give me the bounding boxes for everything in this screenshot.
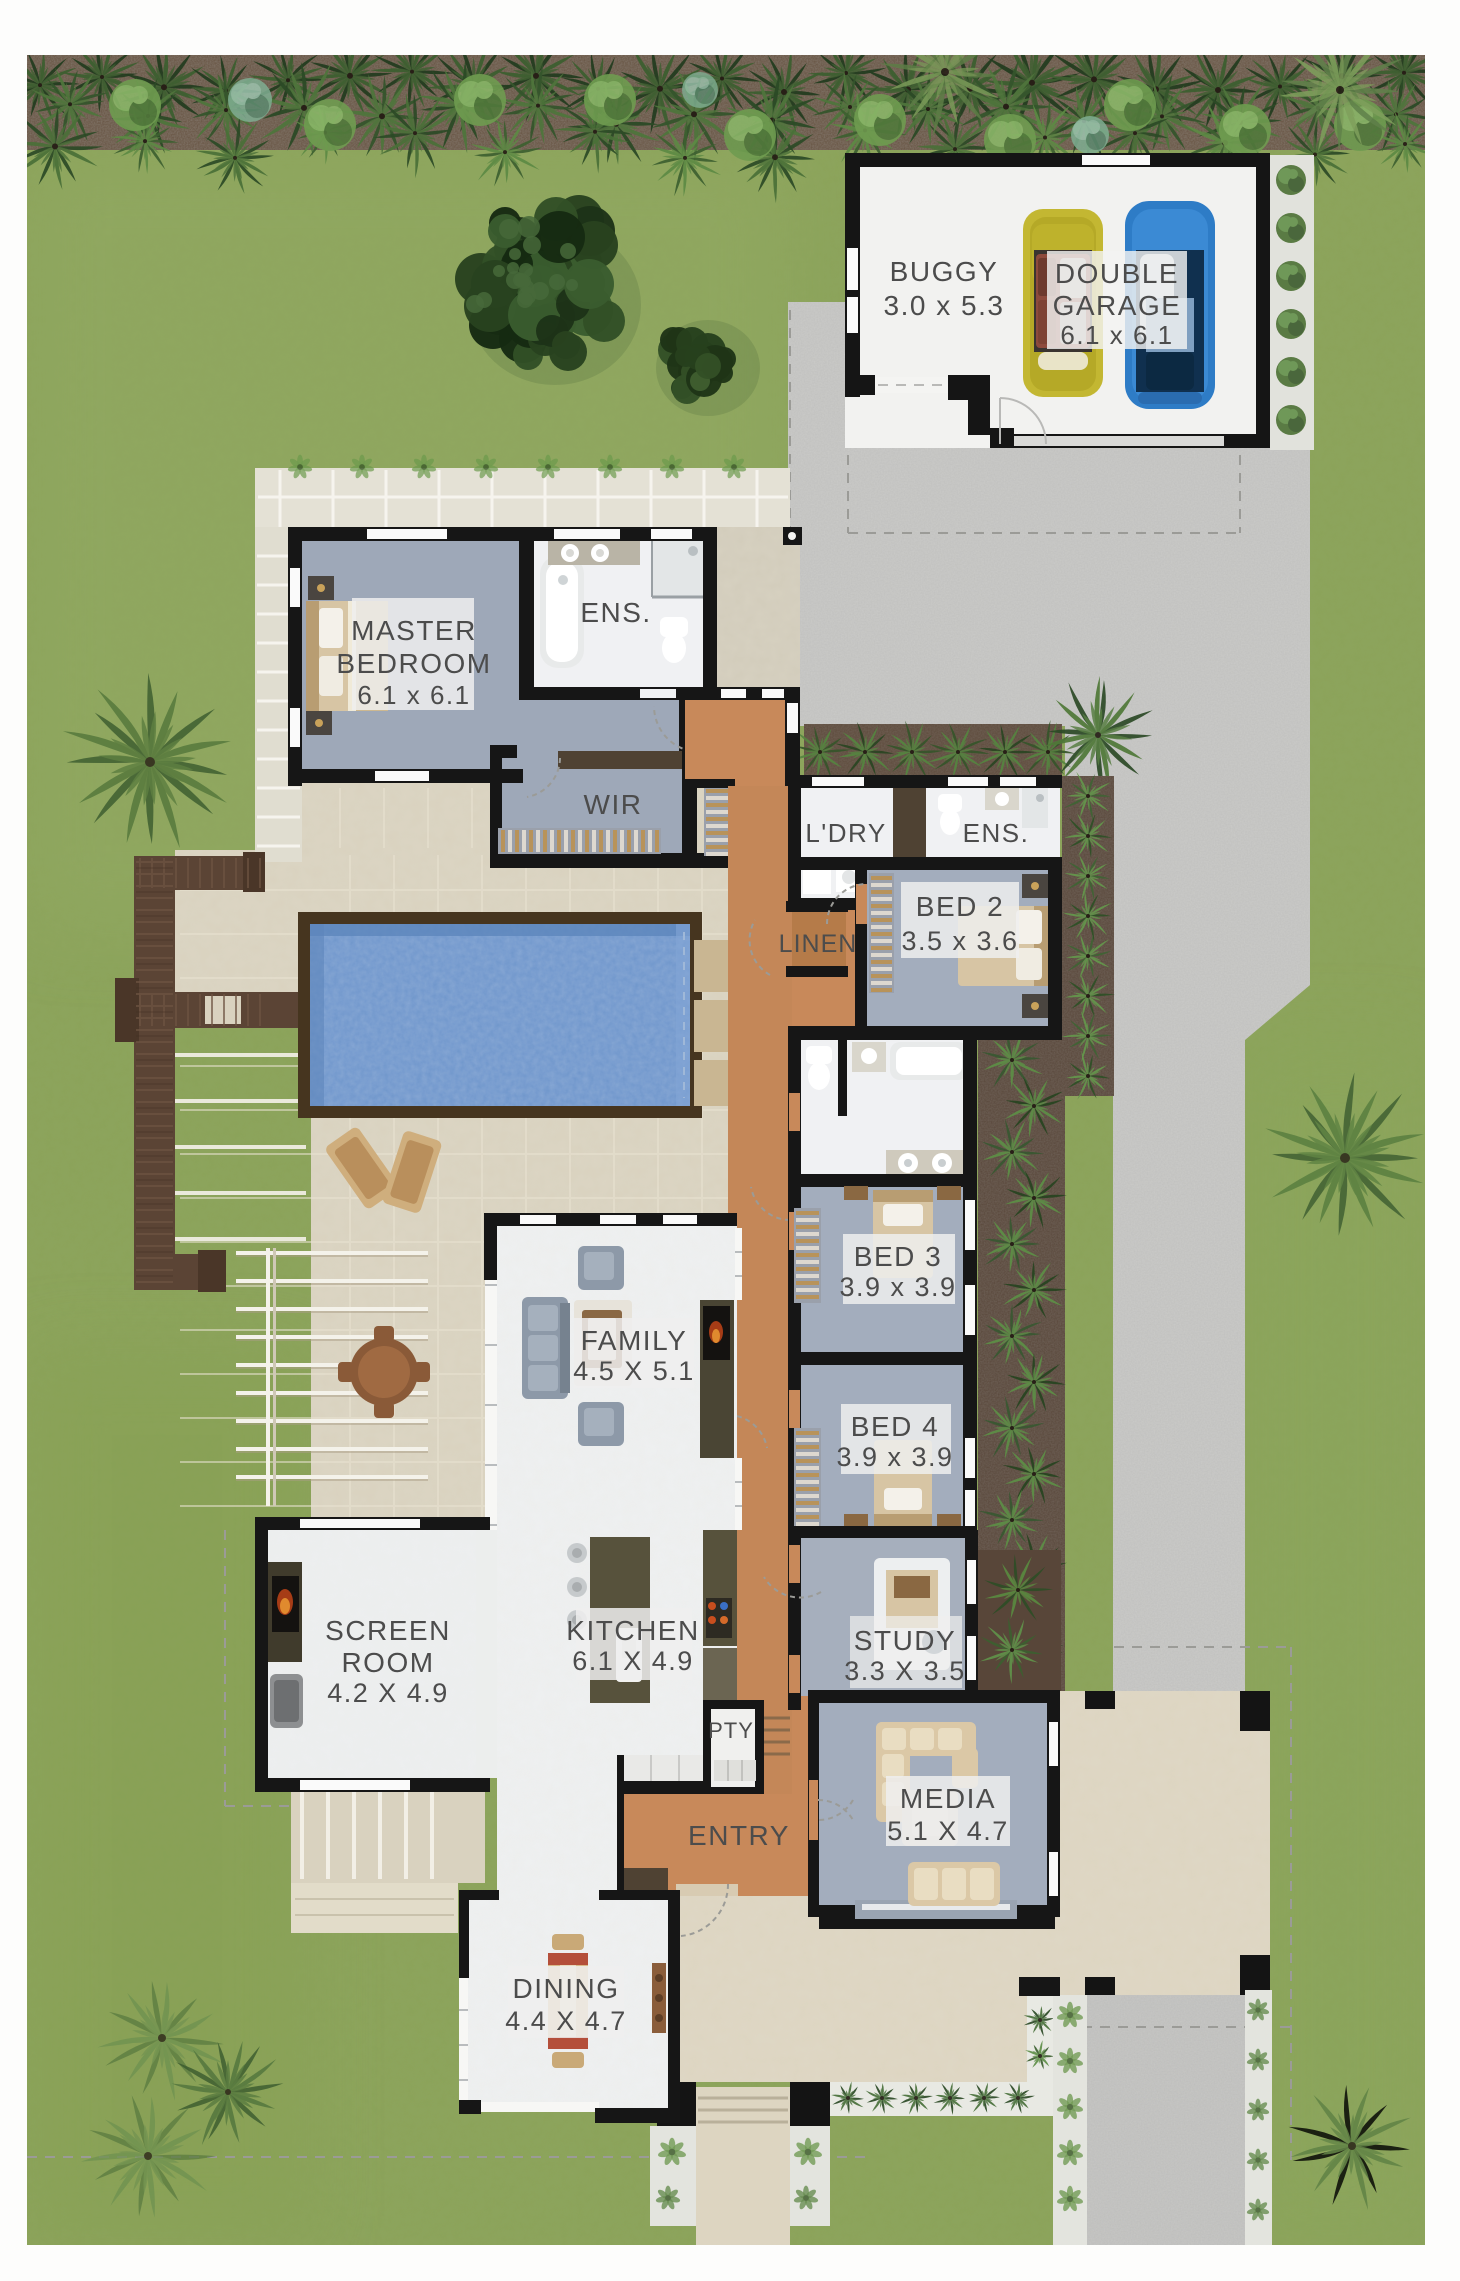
svg-text:KITCHEN: KITCHEN — [566, 1615, 699, 1646]
svg-text:L'DRY: L'DRY — [805, 818, 886, 848]
svg-text:PTY: PTY — [708, 1718, 754, 1743]
svg-text:BEDROOM: BEDROOM — [336, 648, 491, 679]
svg-text:LINEN: LINEN — [779, 930, 858, 958]
svg-text:MEDIA: MEDIA — [900, 1783, 996, 1814]
svg-text:4.2 X 4.9: 4.2 X 4.9 — [327, 1678, 449, 1708]
svg-text:4.5 X 5.1: 4.5 X 5.1 — [573, 1356, 695, 1386]
svg-text:STUDY: STUDY — [854, 1625, 956, 1656]
svg-text:DINING: DINING — [513, 1973, 620, 2004]
svg-text:3.0 x 5.3: 3.0 x 5.3 — [884, 290, 1005, 321]
svg-text:3.5 x 3.6: 3.5 x 3.6 — [901, 926, 1018, 956]
svg-text:ENS.: ENS. — [963, 818, 1030, 848]
svg-text:SCREEN: SCREEN — [325, 1615, 451, 1646]
svg-text:DOUBLE: DOUBLE — [1055, 258, 1179, 289]
svg-text:ENS.: ENS. — [580, 597, 651, 628]
svg-text:FAMILY: FAMILY — [581, 1325, 688, 1356]
svg-text:ROOM: ROOM — [341, 1647, 434, 1678]
svg-text:WIR: WIR — [584, 789, 643, 820]
svg-text:MASTER: MASTER — [351, 615, 477, 646]
svg-text:BED 4: BED 4 — [851, 1411, 939, 1442]
svg-text:BUGGY: BUGGY — [890, 256, 999, 287]
svg-text:3.9 x 3.9: 3.9 x 3.9 — [839, 1272, 956, 1302]
svg-text:ENTRY: ENTRY — [688, 1820, 790, 1851]
svg-text:6.1 x 6.1: 6.1 x 6.1 — [357, 680, 470, 710]
svg-text:BED 2: BED 2 — [916, 891, 1004, 922]
svg-text:4.4 X 4.7: 4.4 X 4.7 — [505, 2006, 627, 2036]
svg-text:3.9 x 3.9: 3.9 x 3.9 — [836, 1442, 953, 1472]
svg-text:3.3 X 3.5: 3.3 X 3.5 — [844, 1656, 966, 1686]
svg-text:5.1 X 4.7: 5.1 X 4.7 — [887, 1816, 1009, 1846]
svg-text:6.1 X 4.9: 6.1 X 4.9 — [572, 1646, 694, 1676]
svg-text:6.1 x 6.1: 6.1 x 6.1 — [1060, 320, 1173, 350]
svg-text:BED 3: BED 3 — [854, 1241, 942, 1272]
svg-text:GARAGE: GARAGE — [1053, 290, 1182, 321]
